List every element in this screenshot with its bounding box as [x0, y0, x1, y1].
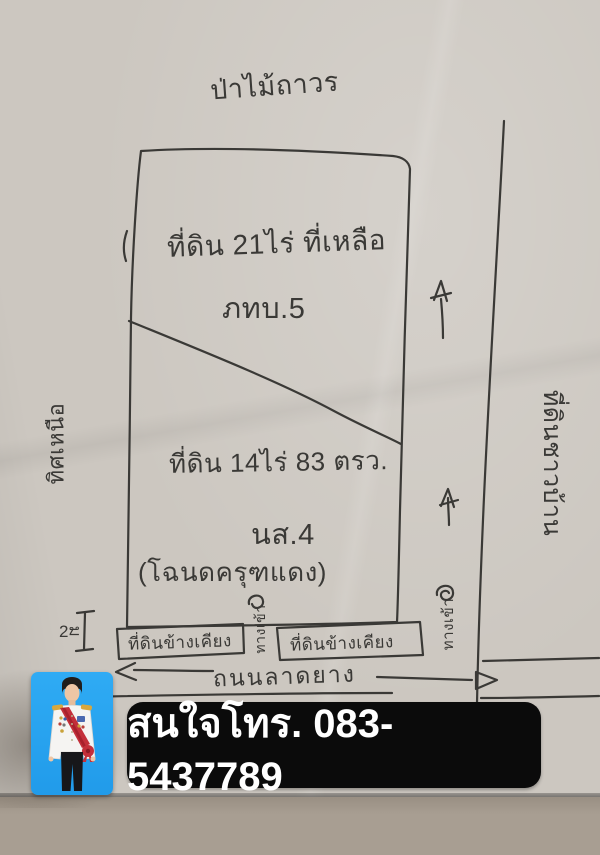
lower-parcel-deed-label: นส.4	[251, 511, 315, 557]
parcel-divider	[129, 321, 401, 444]
seller-portrait-photo	[31, 672, 113, 795]
lower-parcel-deed-note: (โฉนดครุฑแดง)	[138, 552, 327, 593]
dimension-unit: ม	[61, 626, 88, 638]
entrance-right-label: ทางเข้า	[436, 581, 460, 667]
upper-parcel-deed-label: ภทบ.5	[222, 285, 305, 331]
forest-top-label: ป่าไม้ถาวร	[209, 60, 341, 112]
entrance-middle-label: ทางเข้า	[250, 589, 272, 669]
villagers-land-label: ที่ดินชาวบ้าน	[532, 348, 572, 578]
lower-parcel-area-label: ที่ดิน 14ไร่ 83 ตรว.	[169, 440, 389, 485]
dimension-label: 2ม	[59, 618, 81, 645]
right-road-line	[477, 121, 504, 704]
adjacent-plot-right-label: ที่ดินข้างเคียง	[290, 628, 395, 659]
photographed-land-sketch: ป่าไม้ถาวร ที่ดิน 21ไร่ ที่เหลือ ภทบ.5 ท…	[0, 0, 600, 855]
contact-banner: สนใจโทร. 083-5437789	[127, 702, 541, 788]
adjacent-plot-left-label: ที่ดินข้างเคียง	[128, 627, 233, 658]
upper-parcel-area-label: ที่ดิน 21ไร่ ที่เหลือ	[166, 218, 386, 270]
north-side-label: ทิศเหนือ	[39, 378, 74, 510]
uniformed-man-illustration	[31, 672, 113, 795]
contact-phone-text: สนใจโทร. 083-5437789	[127, 691, 541, 800]
